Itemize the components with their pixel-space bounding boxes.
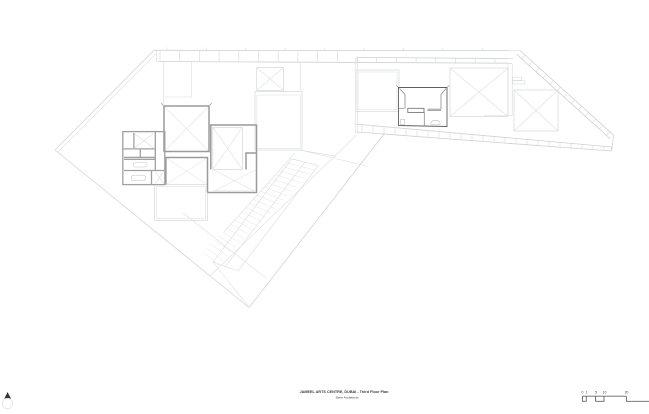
svg-text:1: 1 xyxy=(586,390,588,394)
svg-text:JAMEEL ARTS CENTRE, DUBAI - T: JAMEEL ARTS CENTRE, DUBAI - Third Floor … xyxy=(300,390,389,394)
svg-text:0: 0 xyxy=(582,390,584,394)
svg-text:20: 20 xyxy=(625,390,629,394)
svg-text:10: 10 xyxy=(603,390,607,394)
svg-text:Serie Architects: Serie Architects xyxy=(336,396,359,400)
svg-text:5: 5 xyxy=(595,390,597,394)
